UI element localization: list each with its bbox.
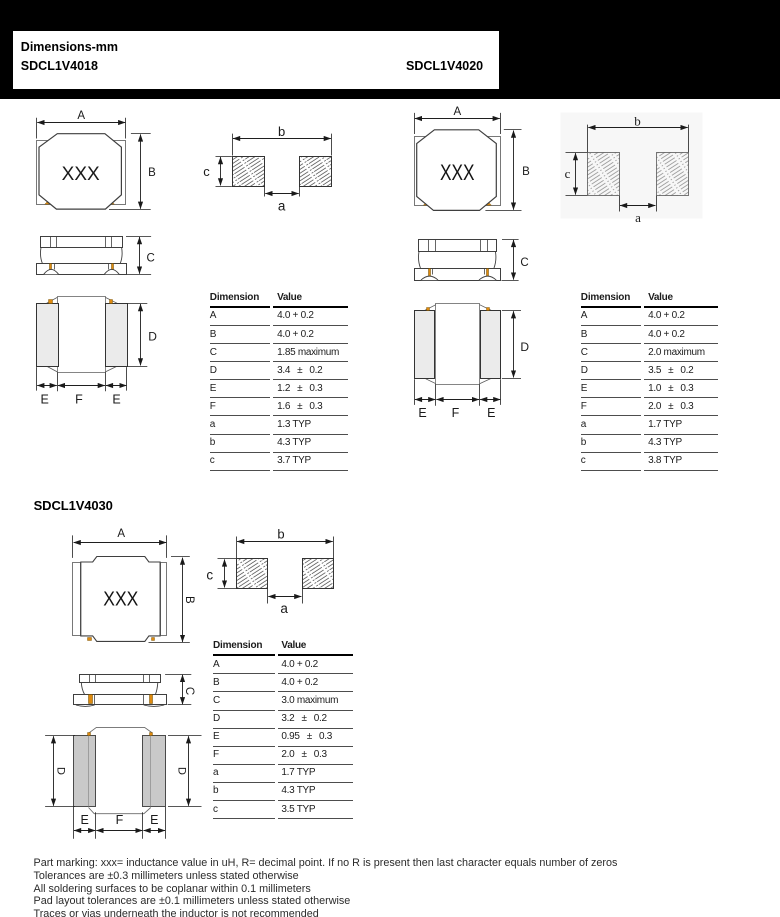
svg-text:E: E	[487, 406, 495, 420]
svg-text:E: E	[418, 406, 426, 420]
svg-text:A: A	[453, 106, 461, 118]
svg-text:a: a	[635, 210, 641, 225]
svg-text:F: F	[75, 392, 83, 406]
svg-text:F: F	[116, 813, 124, 827]
svg-text:D: D	[520, 340, 529, 354]
svg-text:C: C	[183, 687, 195, 695]
svg-text:XXX: XXX	[62, 164, 100, 185]
svg-text:B: B	[522, 166, 530, 178]
svg-text:B: B	[183, 596, 195, 604]
svg-text:E: E	[112, 392, 120, 406]
svg-text:b: b	[634, 113, 641, 128]
svg-text:D: D	[148, 330, 157, 344]
svg-text:E: E	[81, 813, 89, 827]
svg-text:XXX: XXX	[440, 160, 475, 185]
svg-text:D: D	[54, 767, 66, 775]
svg-text:b: b	[277, 526, 284, 541]
svg-text:a: a	[280, 601, 288, 616]
svg-text:c: c	[565, 166, 571, 181]
svg-text:A: A	[77, 110, 85, 122]
svg-text:A: A	[117, 528, 125, 540]
svg-text:b: b	[278, 124, 285, 139]
svg-text:c: c	[203, 164, 210, 179]
svg-text:C: C	[520, 257, 528, 269]
svg-text:E: E	[41, 392, 49, 406]
svg-text:C: C	[146, 252, 154, 264]
svg-text:E: E	[150, 813, 158, 827]
svg-text:c: c	[206, 568, 213, 583]
svg-text:a: a	[278, 199, 286, 214]
svg-text:D: D	[175, 767, 187, 775]
svg-text:F: F	[452, 406, 460, 420]
svg-text:B: B	[148, 167, 156, 179]
svg-text:XXX: XXX	[103, 589, 138, 611]
